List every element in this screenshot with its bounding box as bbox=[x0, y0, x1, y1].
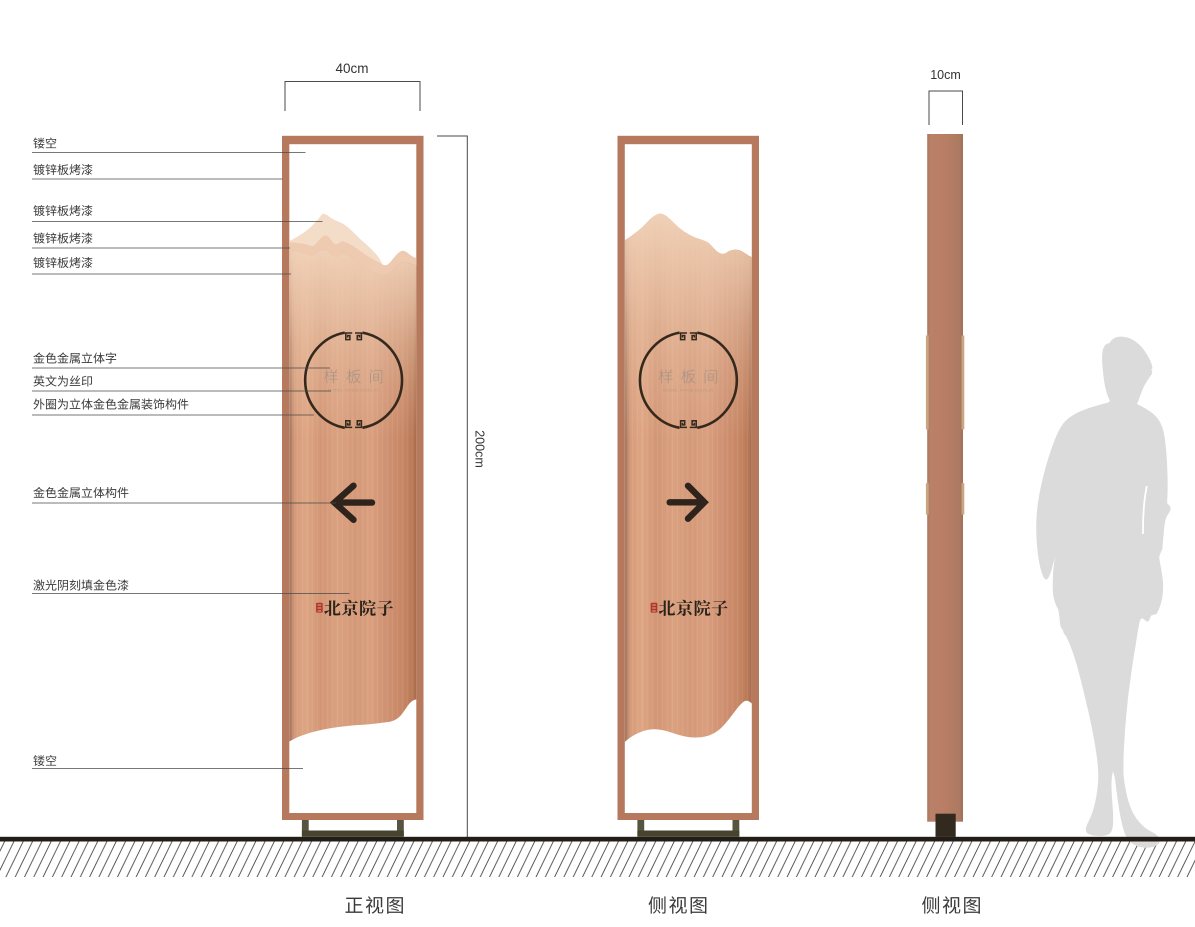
svg-text:40cm: 40cm bbox=[335, 61, 368, 76]
svg-text:200cm: 200cm bbox=[473, 430, 487, 468]
svg-text:MODEL ROOM DISPLAY: MODEL ROOM DISPLAY bbox=[663, 388, 715, 393]
svg-text:10cm: 10cm bbox=[930, 68, 961, 82]
svg-text:MODEL ROOM DISPLAY: MODEL ROOM DISPLAY bbox=[328, 388, 380, 393]
